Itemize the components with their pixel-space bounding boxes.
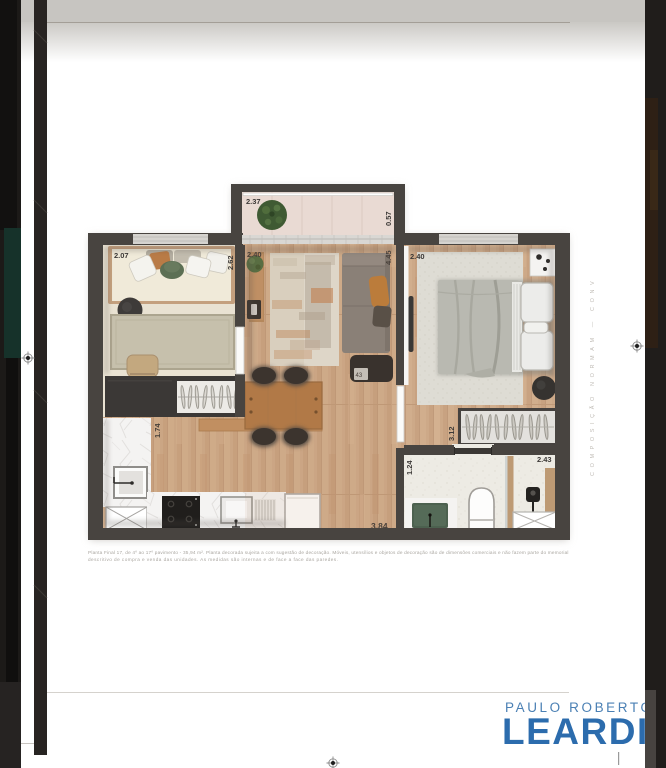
svg-text:1.24: 1.24 bbox=[405, 460, 414, 475]
svg-text:COMPOSIÇÃO NORMAM — CONV: COMPOSIÇÃO NORMAM — CONV bbox=[589, 277, 596, 476]
svg-text:3.12: 3.12 bbox=[447, 426, 456, 441]
svg-text:2.43: 2.43 bbox=[537, 455, 552, 464]
svg-text:2.37: 2.37 bbox=[246, 197, 261, 206]
svg-text:2.62: 2.62 bbox=[226, 255, 235, 270]
svg-text:2.40: 2.40 bbox=[410, 252, 425, 261]
svg-text:LEARDI: LEARDI bbox=[502, 711, 649, 752]
svg-text:descritivo de compra e venda d: descritivo de compra e venda das unidade… bbox=[88, 557, 338, 562]
svg-text:2.07: 2.07 bbox=[114, 251, 129, 260]
svg-text:Planta Final 17, de 4º ao 17º: Planta Final 17, de 4º ao 17º pavimento … bbox=[88, 550, 569, 555]
svg-text:0.57: 0.57 bbox=[384, 211, 393, 226]
